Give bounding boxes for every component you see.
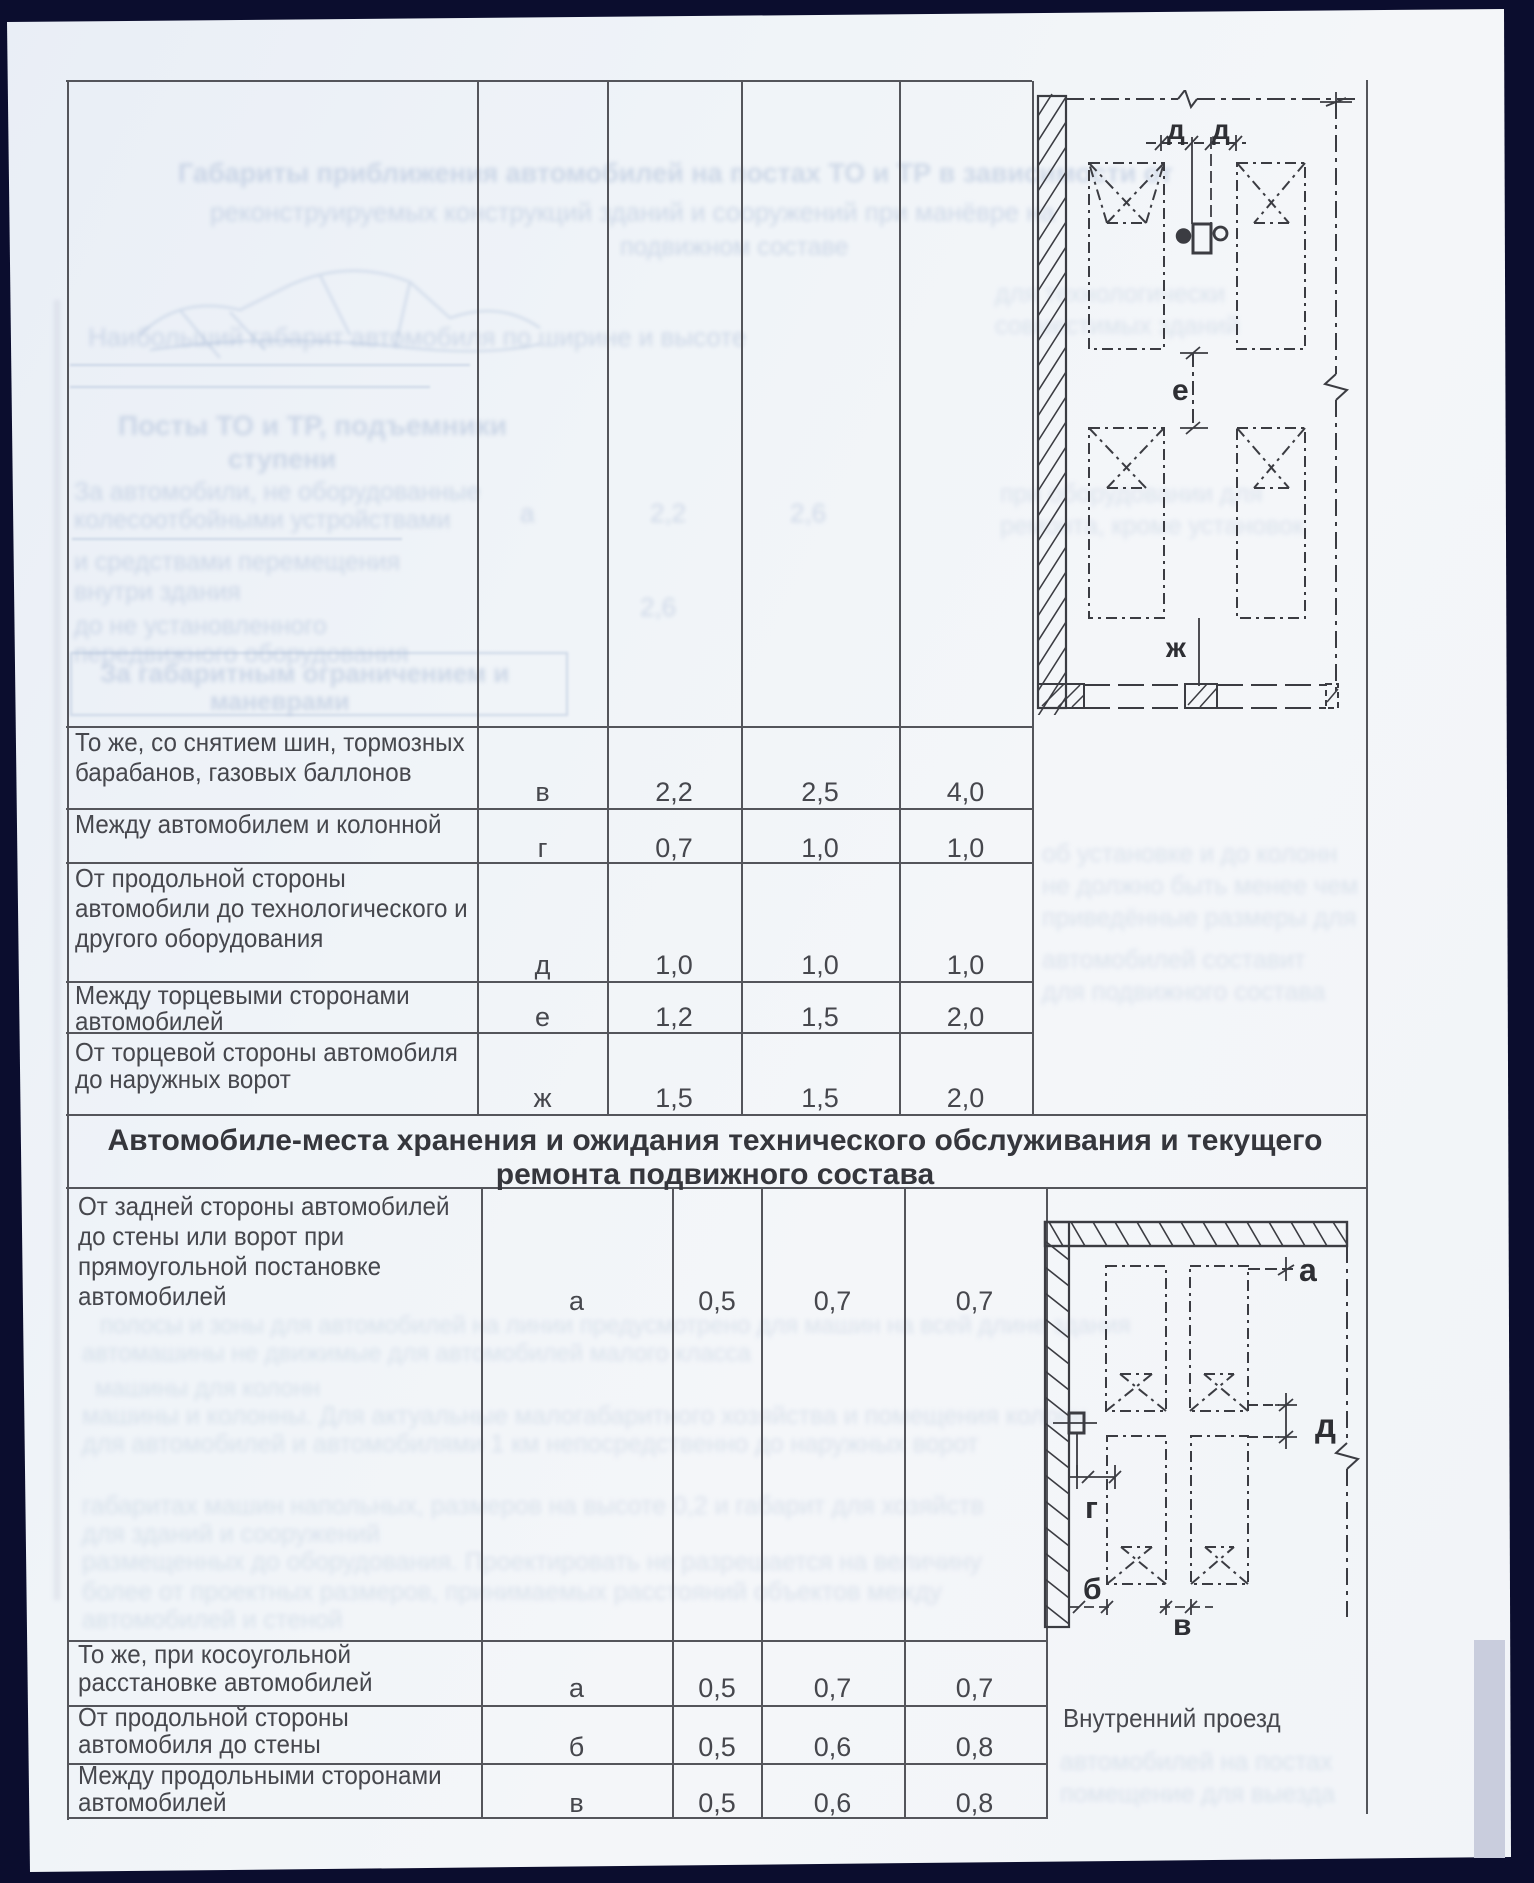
svg-text:а: а	[1299, 1252, 1317, 1288]
svg-text:д: д	[1315, 1407, 1336, 1444]
svg-text:б: б	[1083, 1573, 1102, 1606]
svg-text:в: в	[1173, 1609, 1191, 1642]
svg-text:д: д	[1167, 114, 1185, 145]
svg-text:г: г	[1085, 1490, 1098, 1525]
svg-text:ж: ж	[1165, 632, 1187, 663]
svg-text:е: е	[1172, 374, 1189, 407]
svg-text:д: д	[1212, 114, 1230, 145]
